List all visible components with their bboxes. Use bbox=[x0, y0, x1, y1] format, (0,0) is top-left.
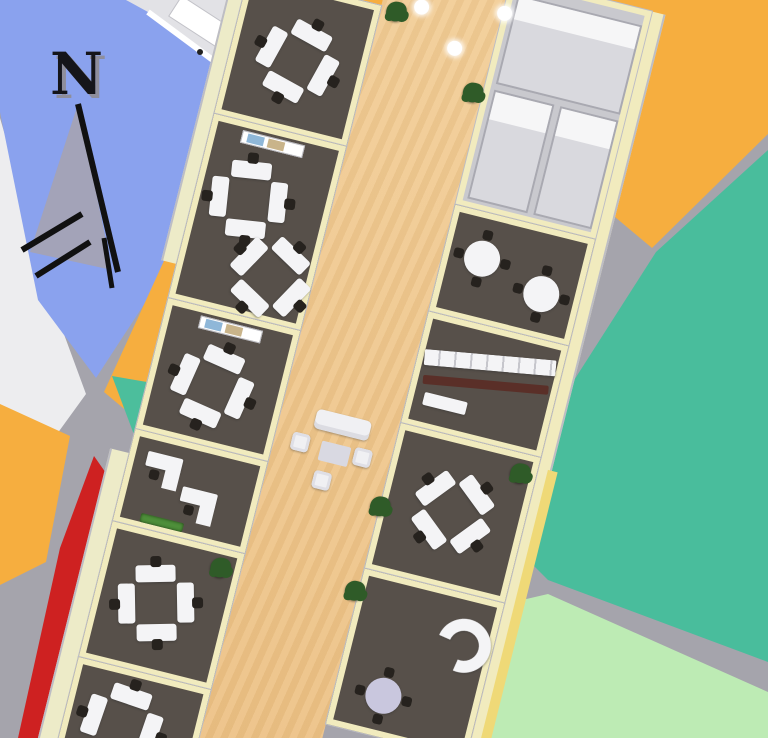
office-chair bbox=[109, 599, 120, 610]
photo-print bbox=[204, 319, 223, 332]
chair bbox=[541, 265, 553, 277]
office-chair bbox=[152, 639, 163, 650]
office-chair bbox=[247, 152, 259, 164]
compass-label: N bbox=[50, 40, 103, 108]
chair bbox=[372, 713, 384, 725]
photo-print bbox=[246, 133, 265, 146]
chair bbox=[383, 666, 395, 678]
chair bbox=[529, 311, 541, 323]
office-chair bbox=[150, 556, 161, 567]
chair bbox=[482, 229, 494, 241]
office-chair bbox=[284, 198, 296, 210]
round-table bbox=[362, 674, 406, 718]
chair bbox=[470, 276, 482, 288]
photo-print bbox=[267, 139, 286, 152]
round-table bbox=[460, 237, 504, 281]
floor-plan-render: N N bbox=[0, 0, 768, 738]
office-chair bbox=[192, 597, 203, 608]
photo-print bbox=[225, 324, 244, 337]
desk bbox=[135, 565, 175, 583]
round-table bbox=[519, 272, 563, 316]
desk bbox=[118, 583, 136, 623]
office-chair bbox=[201, 190, 213, 202]
desk-cluster bbox=[113, 560, 198, 645]
